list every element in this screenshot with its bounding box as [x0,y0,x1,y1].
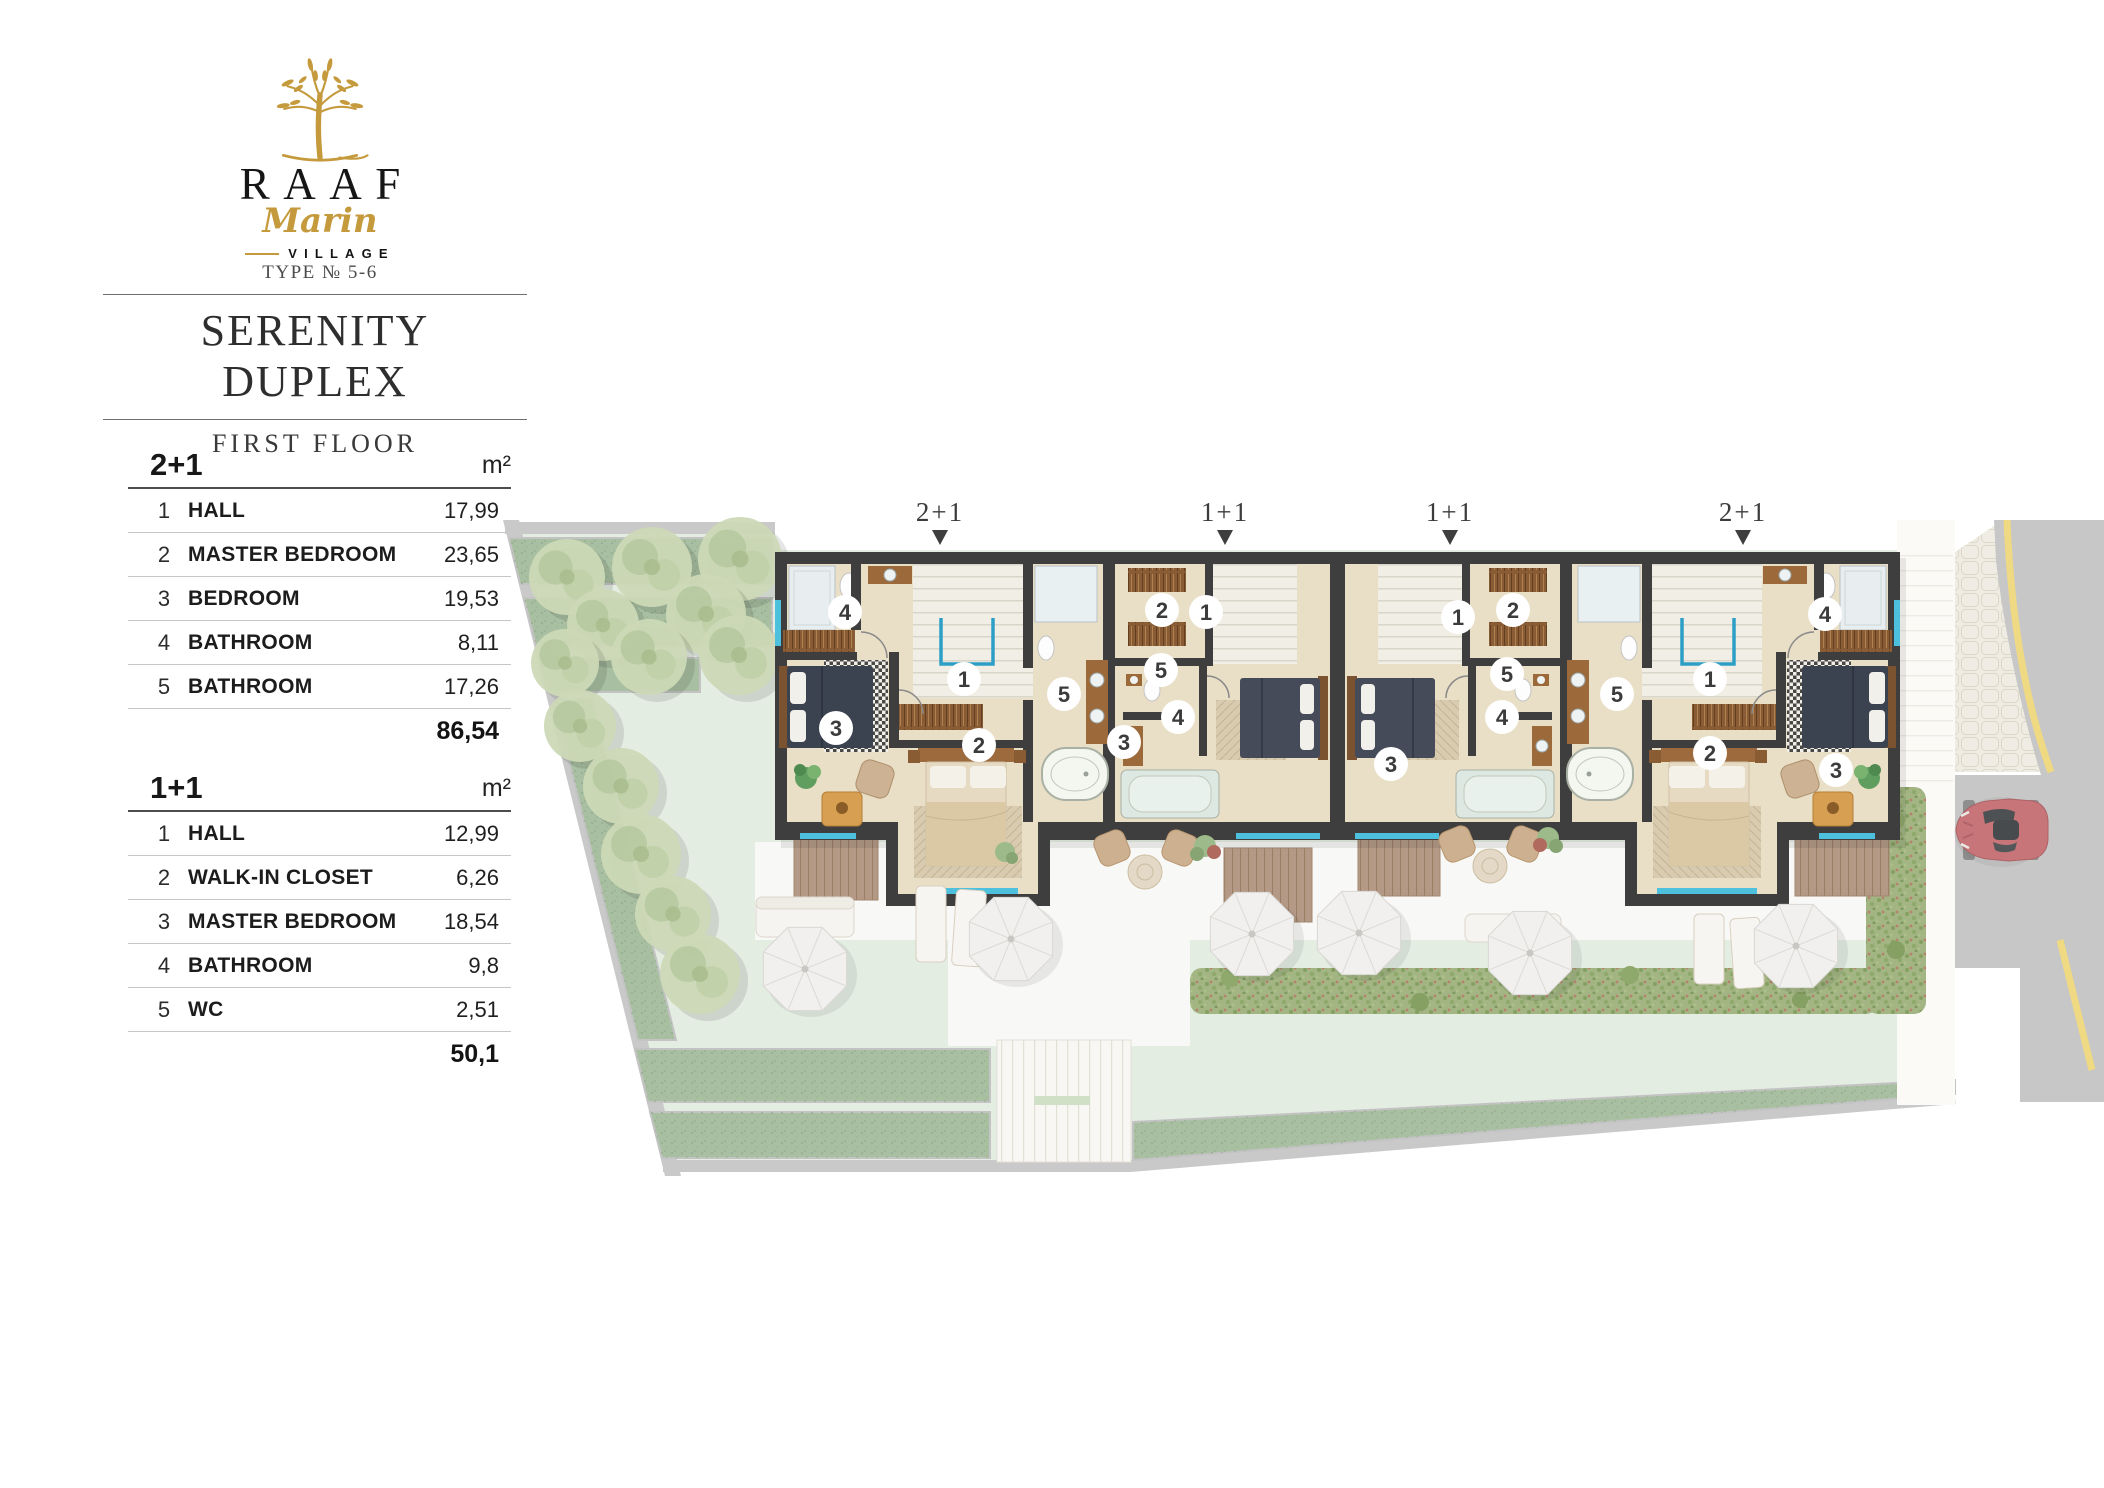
room-marker-number: 3 [1118,730,1130,755]
room-marker-number: 2 [973,733,985,758]
room-marker: 3 [819,711,853,745]
room-marker: 3 [1374,747,1408,781]
room-marker: 3 [1819,753,1853,787]
room-marker: 5 [1144,653,1178,687]
room-marker: 5 [1047,677,1081,711]
room-marker: 2 [1693,736,1727,770]
room-marker-number: 4 [1172,705,1185,730]
room-marker-number: 4 [839,600,852,625]
room-marker: 4 [1485,700,1519,734]
room-marker: 4 [1808,597,1842,631]
room-marker: 1 [1189,595,1223,629]
unit-label: 2+1 [916,497,964,527]
room-marker: 5 [1600,677,1634,711]
page: RAAF Marin VILLAGE TYPE № 5-6 SERENITY D… [0,0,2104,1488]
room-marker-number: 5 [1058,682,1070,707]
room-marker-number: 2 [1507,598,1519,623]
room-marker: 3 [1107,725,1141,759]
room-marker: 1 [1693,662,1727,696]
room-marker: 5 [1490,657,1524,691]
room-marker-number: 5 [1611,682,1623,707]
room-marker-number: 2 [1156,598,1168,623]
red-car [1954,797,2048,867]
floor-plan: 12345123451234512345 2+1 1+1 1+1 2+1 [0,0,2104,1488]
room-marker-number: 4 [1819,602,1832,627]
room-marker-number: 3 [1385,752,1397,777]
room-marker-number: 3 [1830,758,1842,783]
room-marker: 1 [1441,600,1475,634]
room-marker-number: 1 [1704,667,1716,692]
room-marker-number: 3 [830,716,842,741]
room-marker-number: 5 [1501,662,1513,687]
room-marker: 4 [828,595,862,629]
room-marker-number: 1 [1200,600,1212,625]
room-marker: 2 [1145,593,1179,627]
unit-label: 2+1 [1719,497,1767,527]
room-marker-number: 4 [1496,705,1509,730]
room-marker-number: 5 [1155,658,1167,683]
room-marker-number: 2 [1704,741,1716,766]
room-marker-number: 1 [958,667,970,692]
room-marker-number: 1 [1452,605,1464,630]
room-marker: 4 [1161,700,1195,734]
room-marker: 2 [962,728,996,762]
room-marker: 1 [947,662,981,696]
unit-label: 1+1 [1426,497,1474,527]
unit-label: 1+1 [1201,497,1249,527]
room-marker: 2 [1496,593,1530,627]
